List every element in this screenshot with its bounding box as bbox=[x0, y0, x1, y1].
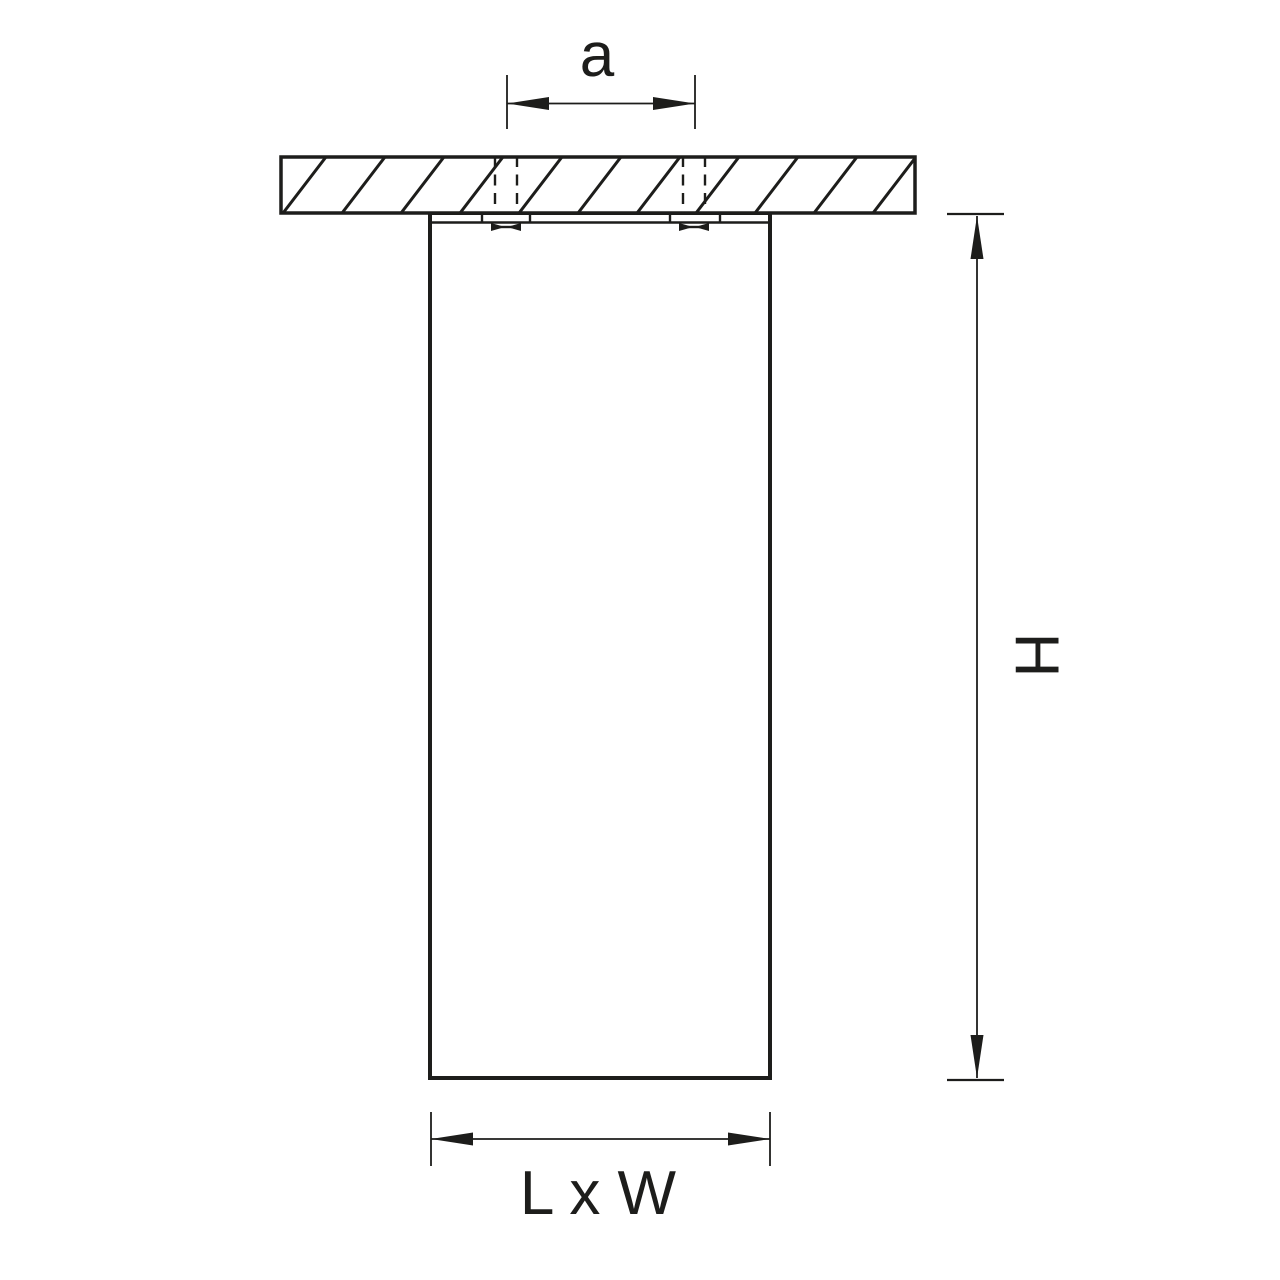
dimension-h-label: H bbox=[1002, 633, 1071, 678]
arrow-left-icon bbox=[507, 97, 549, 110]
technical-drawing: a H L x W bbox=[0, 0, 1280, 1280]
ceiling-plate bbox=[280, 153, 919, 217]
dimension-lxw-label: L x W bbox=[520, 1159, 677, 1228]
arrow-left-icon bbox=[431, 1133, 473, 1146]
arrow-up-icon bbox=[971, 216, 984, 259]
fixture-body bbox=[430, 213, 770, 1078]
dimension-a-label: a bbox=[580, 21, 615, 90]
arrow-right-icon bbox=[653, 97, 695, 110]
drawing-canvas: a H L x W bbox=[0, 0, 1280, 1280]
arrow-right-icon bbox=[728, 1133, 770, 1146]
arrow-down-icon bbox=[971, 1035, 984, 1078]
dimension-lxw: L x W bbox=[431, 1112, 770, 1228]
dimension-a: a bbox=[507, 21, 695, 129]
dimension-h: H bbox=[947, 214, 1071, 1080]
